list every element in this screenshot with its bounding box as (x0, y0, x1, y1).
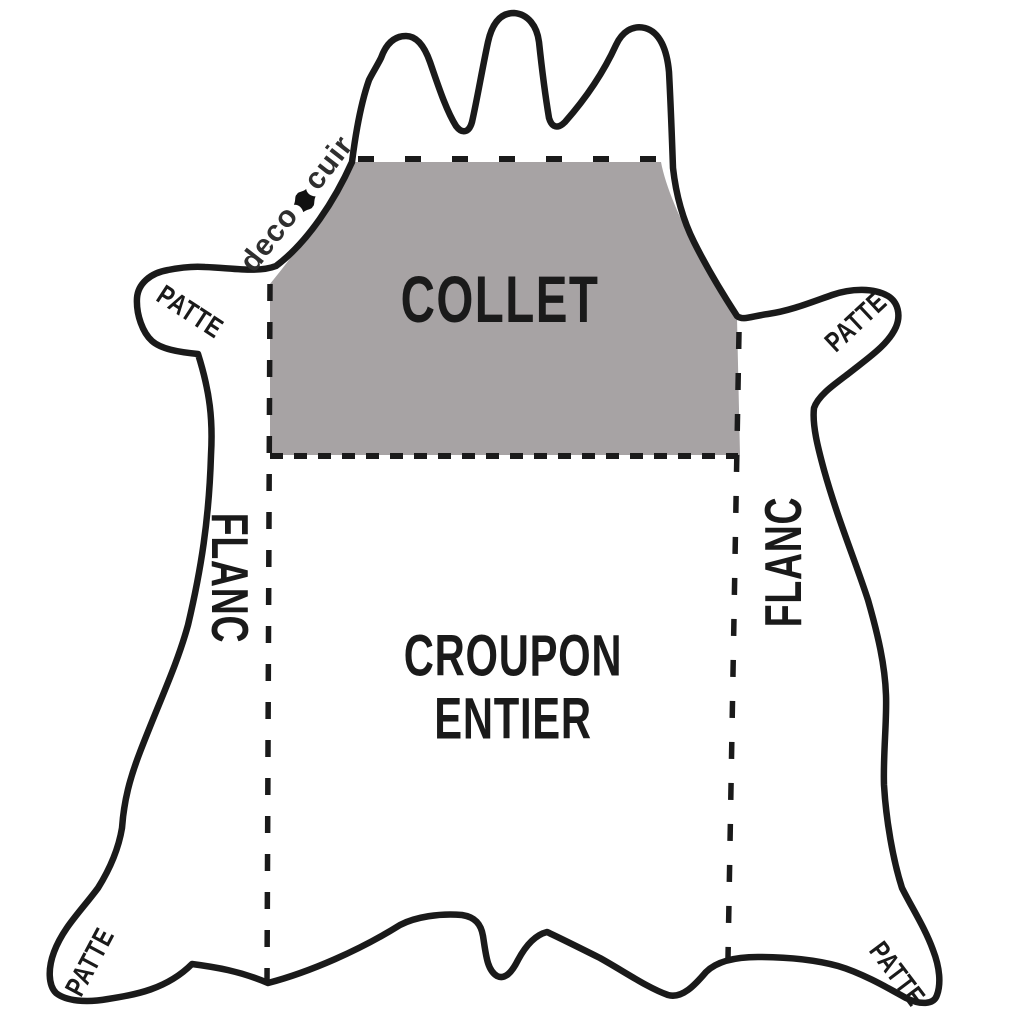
flanc-right-label: FLANC (754, 497, 814, 627)
hide-drawing (0, 0, 1024, 1024)
croupon-entier-label: CROUPON ENTIER (404, 625, 622, 750)
flanc-left-dashed-line (267, 284, 270, 984)
croupon-label-line2: ENTIER (404, 688, 622, 751)
croupon-label-line1: CROUPON (404, 625, 622, 688)
hide-diagram: deco cuir COLLET CROUPON ENTIER FLANC FL… (0, 0, 1024, 1024)
flanc-left-label: FLANC (199, 513, 259, 643)
collet-label: COLLET (401, 261, 600, 337)
